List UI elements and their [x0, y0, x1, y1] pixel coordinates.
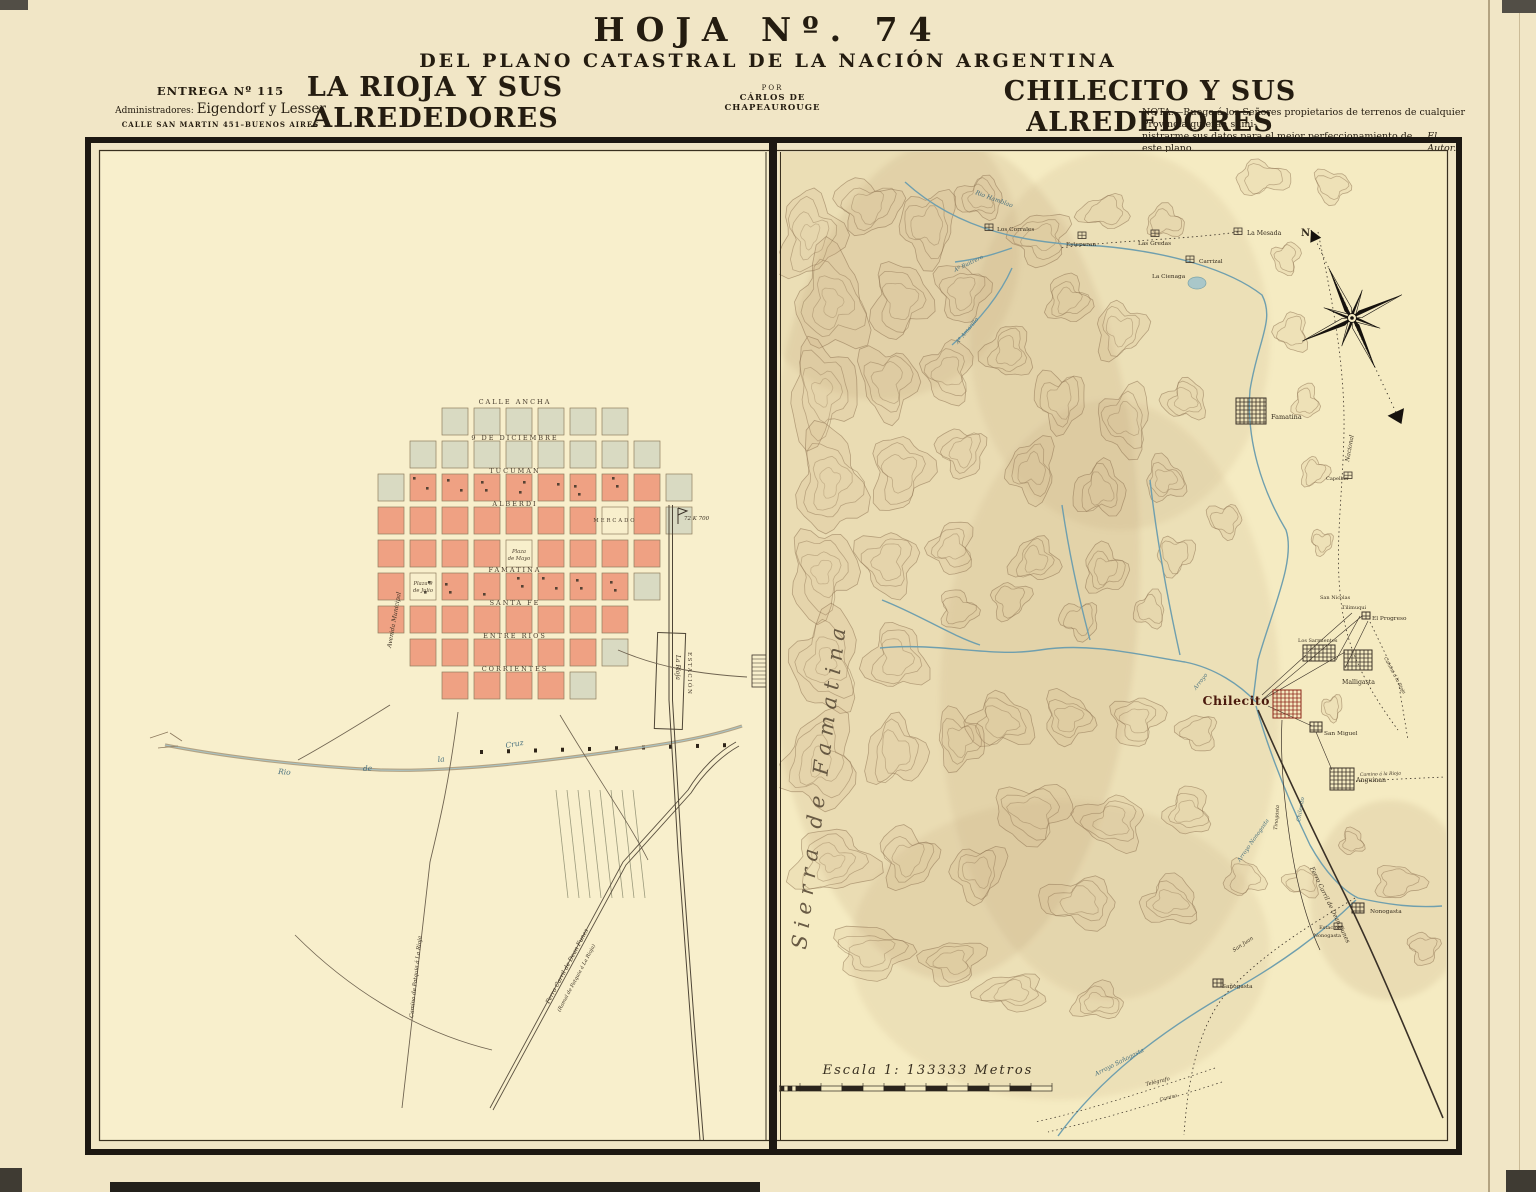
escala-label: Escala 1: 133333 Metros [822, 1063, 1034, 1078]
la-mesada-label: La Mesada [1247, 230, 1282, 237]
carrizal-label: Carrizal [1199, 259, 1223, 265]
los-sarmientos-label: Los Sarmientos [1298, 638, 1338, 644]
street-label: Tucuman [489, 467, 540, 475]
anguinan-label: Anguinan [1355, 777, 1386, 784]
map-plate: Calle Ancha 9 de Diciembre Tucuman Alber… [0, 0, 1536, 1192]
sanogasta-label: Sañogasta [1222, 983, 1253, 990]
map-sheet: HOJA Nº. 74 DEL PLANO CATASTRAL DE LA NA… [0, 0, 1536, 1192]
river-word-rio: Rio [277, 767, 292, 777]
page-edge-line [1519, 0, 1520, 1192]
street-label: 9 de Diciembre [471, 434, 558, 442]
tilimuqui-label: Tilimuqui [1342, 605, 1367, 611]
san-nicolas-label: San Nicolas [1320, 595, 1351, 601]
street-label: Entre Rios [483, 632, 547, 640]
scan-corner-bl [0, 1168, 22, 1192]
el-progreso-label: El Progreso [1372, 616, 1407, 622]
river-word-la: la [437, 754, 445, 764]
mercado-label: Mercado [593, 518, 636, 524]
plaza-9-julio-label2: de Julio [413, 588, 433, 594]
scan-corner-tr [1502, 0, 1536, 13]
scan-corner-br [1506, 1170, 1536, 1192]
street-label: Corrientes [482, 665, 549, 673]
estacion-nonogasta-label-2: Nonogasta [1314, 933, 1341, 939]
malligasta-label: Malligasta [1342, 679, 1375, 686]
la-cienaga-pond [1188, 277, 1206, 289]
la-cienaga-label: La Cienaga [1152, 274, 1186, 280]
km-marker-label: 72 K 700 [684, 516, 710, 522]
river-word-de: de [363, 764, 373, 773]
capellan-label: Capellán [1326, 475, 1349, 482]
san-miguel-label: San Miguel [1324, 731, 1358, 737]
page-fold-line [1488, 0, 1490, 1192]
compass-north-label: N [1301, 228, 1310, 239]
las-gredas-label: Las Gredas [1138, 241, 1171, 247]
station-label-1: Estación [686, 652, 694, 695]
street-label: Calle Ancha [479, 398, 552, 406]
street-label: Famatina [489, 566, 542, 574]
station-label-2: La Rioja [674, 654, 681, 680]
famatina-label: Famatina [1271, 413, 1302, 421]
esteperan-label: Esteperan [1066, 242, 1096, 248]
chilecito-town-label: Chilecito [1203, 693, 1270, 708]
street-label: Alberdi [491, 500, 537, 508]
street-label: Santa Fe [490, 599, 541, 607]
nonogasta-label: Nonogasta [1370, 909, 1402, 915]
plaza-9-julio-label: Plaza 9 [412, 581, 433, 587]
plaza-de-mayo-label: Plaza [511, 549, 526, 555]
panel-divider [769, 143, 777, 1149]
plaza-de-mayo-label2: de Mayo [508, 556, 531, 562]
scan-corner-tl [0, 0, 28, 10]
los-corrales-label: Los Corrales [997, 227, 1034, 233]
scan-bottom-strip [110, 1182, 760, 1192]
